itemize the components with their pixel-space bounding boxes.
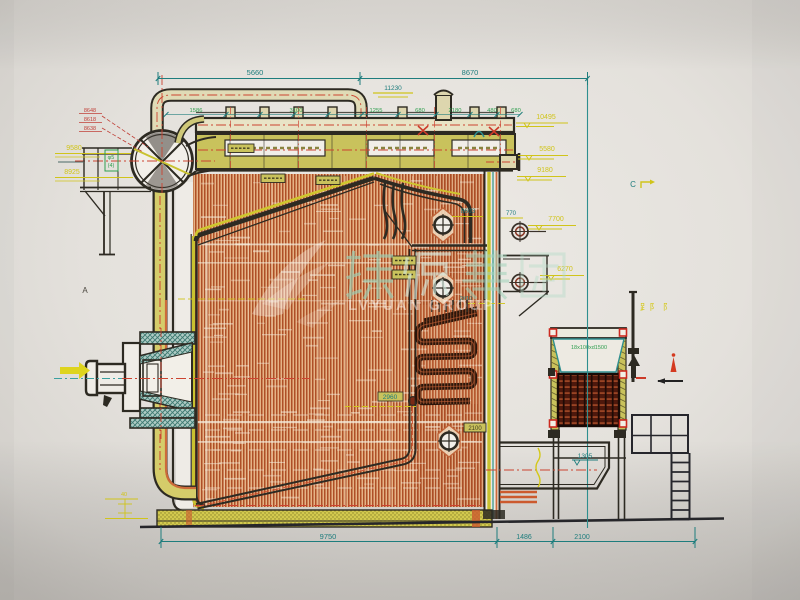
svg-text:2960: 2960 [383,394,398,401]
svg-text:9580: 9580 [66,145,82,152]
svg-text:2100: 2100 [574,534,590,541]
svg-text:C: C [630,180,636,189]
svg-text:A: A [82,286,88,295]
svg-text:1586: 1586 [190,108,203,114]
svg-text:⻊⻖⻏: ⻊⻖⻏ [640,302,669,312]
svg-text:8648: 8648 [84,108,96,114]
svg-text:2100: 2100 [468,426,482,432]
svg-text:1255: 1255 [370,108,383,114]
svg-text:480: 480 [487,108,497,114]
svg-text:680: 680 [511,108,521,114]
svg-text:5580: 5580 [539,146,555,153]
svg-text:40: 40 [121,492,127,498]
svg-text:8603: 8603 [461,208,476,215]
svg-text:680: 680 [415,108,425,114]
svg-text:10495: 10495 [536,114,556,121]
svg-text:9750: 9750 [320,532,337,541]
svg-text:1305: 1305 [578,453,593,460]
svg-text:2180: 2180 [449,108,462,114]
svg-text:7700: 7700 [548,216,564,223]
svg-text:8670: 8670 [462,68,479,77]
svg-text:18x100xd1500: 18x100xd1500 [571,345,607,351]
svg-text:LVYUAN GROUP: LVYUAN GROUP [348,298,495,314]
svg-text:770: 770 [506,211,517,217]
svg-text:8638: 8638 [84,126,96,132]
svg-text:φ5: φ5 [108,155,115,161]
svg-text:(4): (4) [108,163,115,169]
svg-text:9180: 9180 [537,167,553,174]
svg-text:8925: 8925 [64,169,80,176]
svg-text:5660: 5660 [247,68,264,77]
svg-text:11230: 11230 [384,85,402,92]
svg-text:1486: 1486 [516,534,532,541]
svg-text:8618: 8618 [84,117,96,123]
